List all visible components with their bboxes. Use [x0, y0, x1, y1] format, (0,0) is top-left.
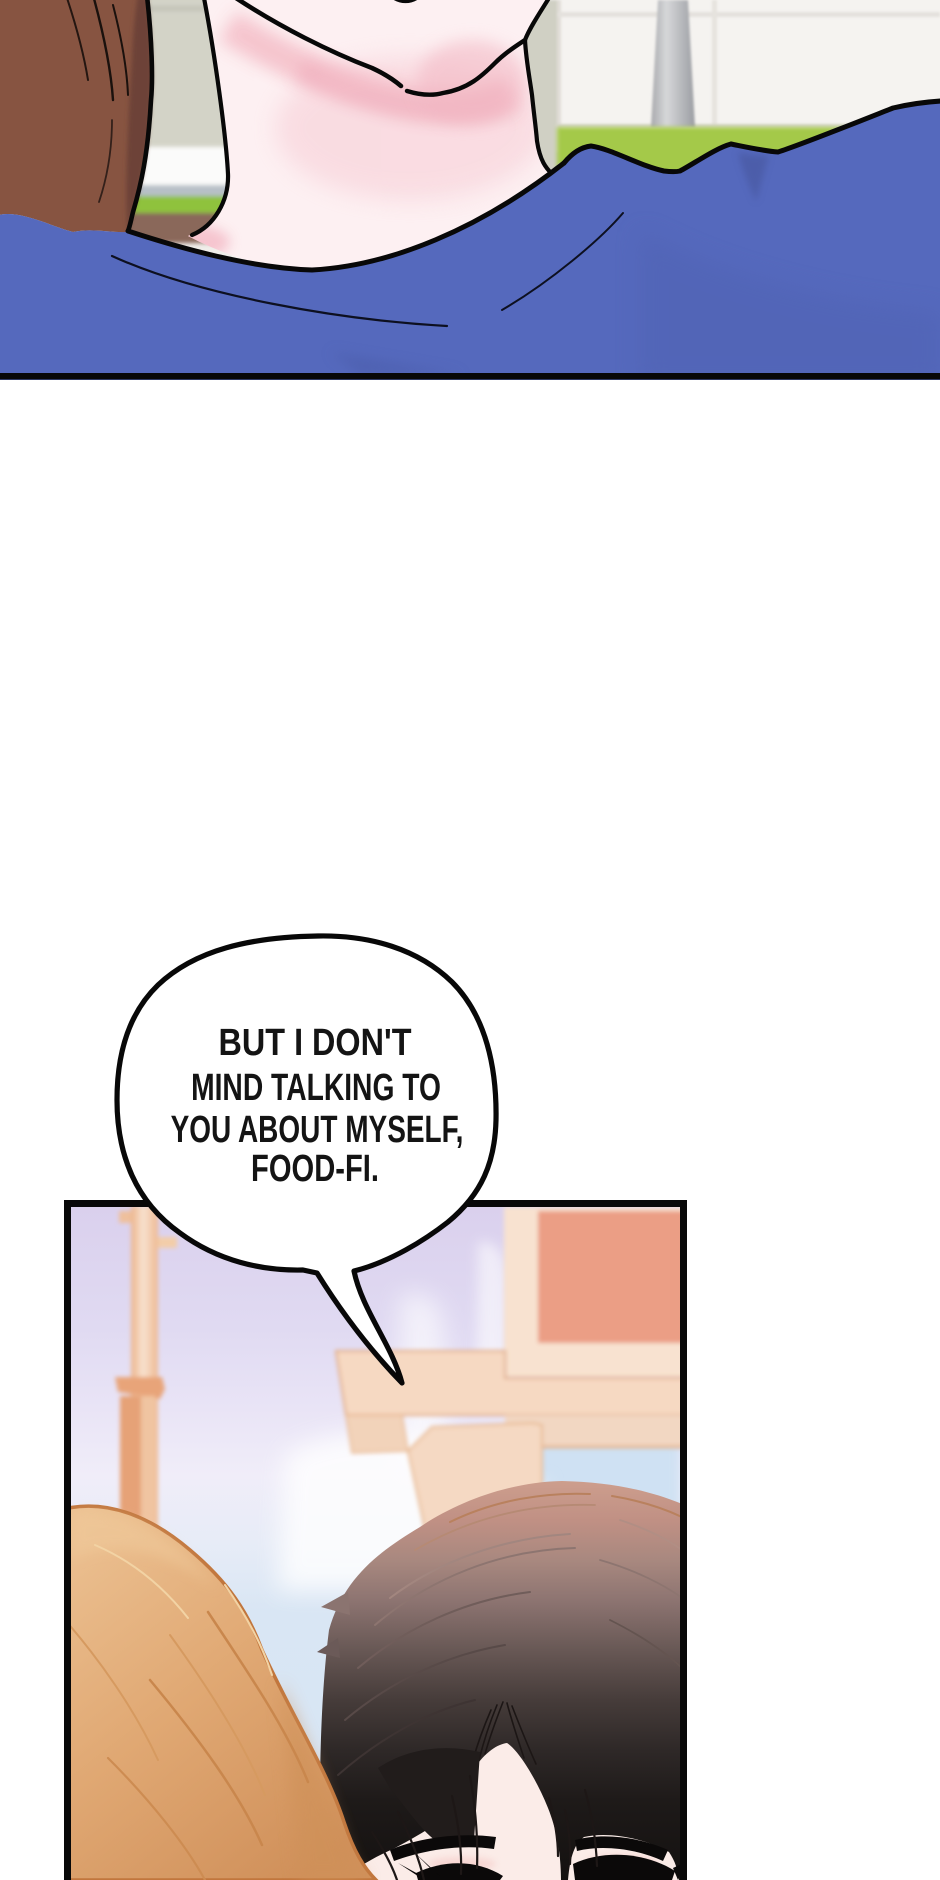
svg-text:YOU ABOUT MYSELF,: YOU ABOUT MYSELF,: [171, 1109, 464, 1151]
svg-text:MIND TALKING TO: MIND TALKING TO: [191, 1067, 441, 1109]
svg-text:BUT I DON'T: BUT I DON'T: [219, 1022, 412, 1064]
svg-text:FOOD-FI.: FOOD-FI.: [251, 1147, 379, 1190]
